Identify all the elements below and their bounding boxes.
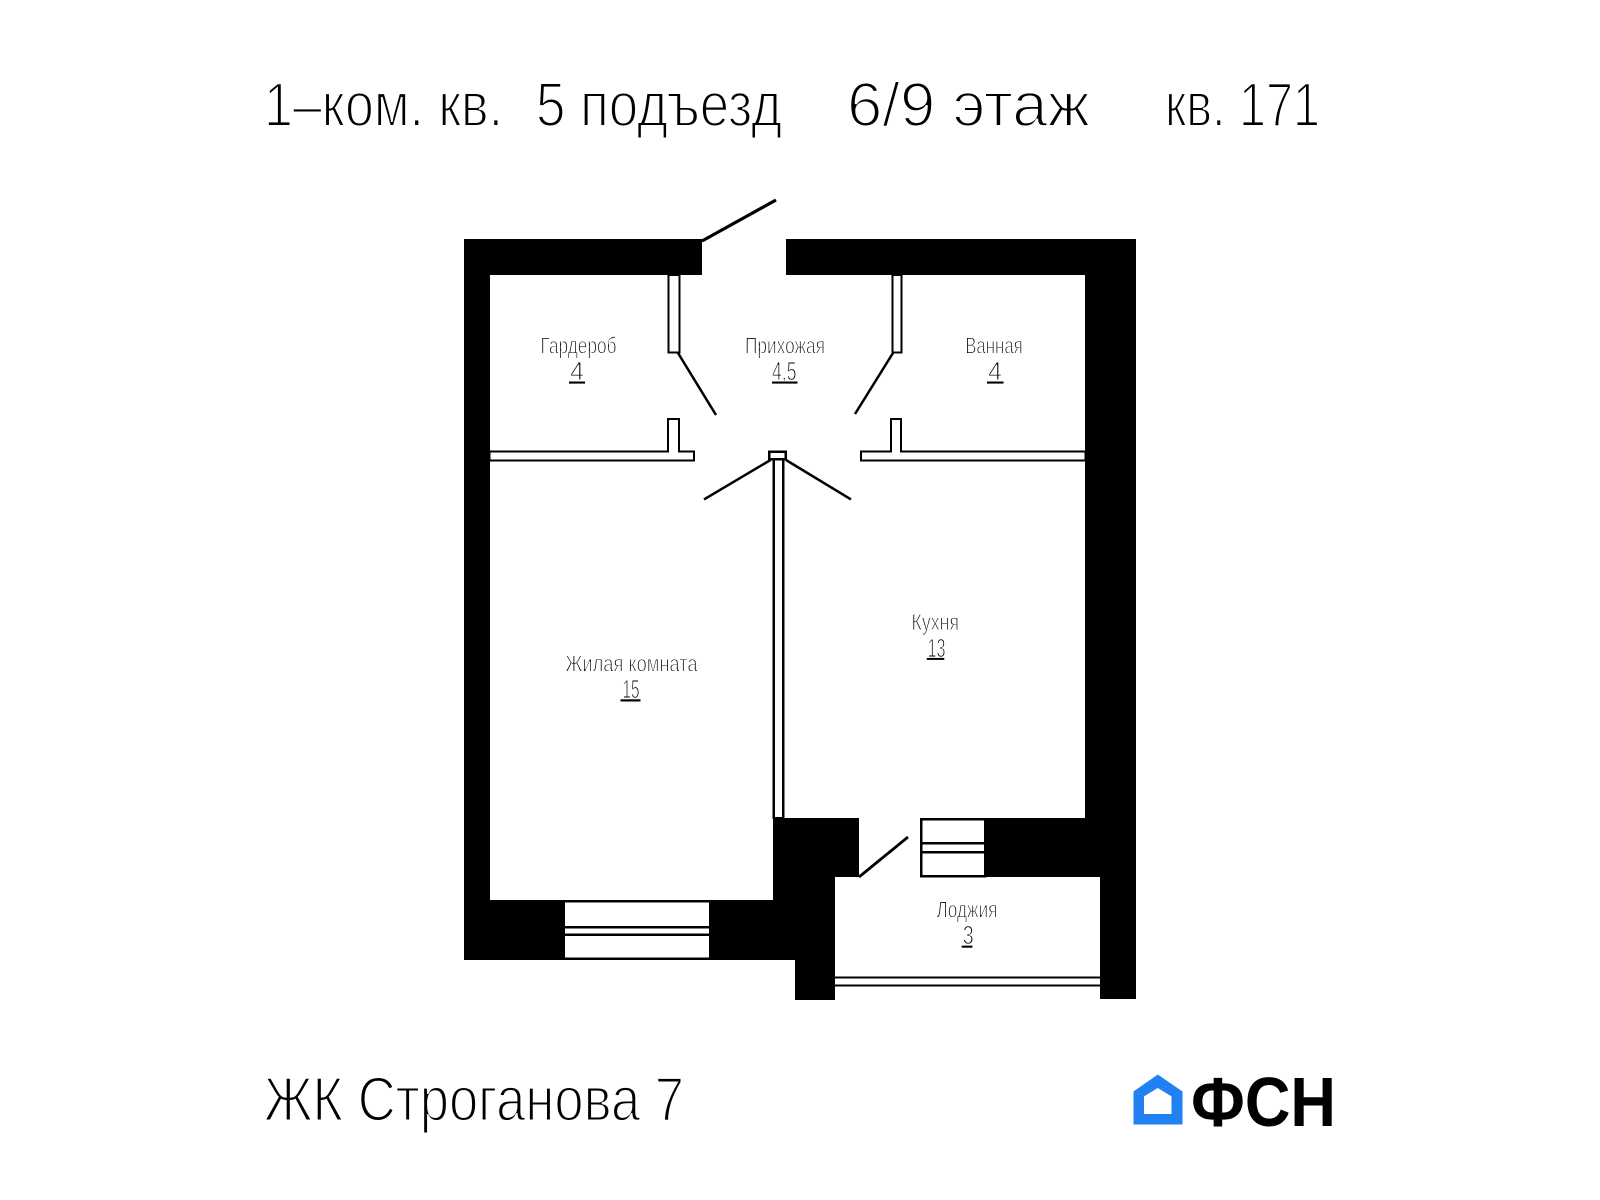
svg-text:1–ком. кв.: 1–ком. кв. <box>264 71 503 140</box>
svg-text:Гардероб: Гардероб <box>541 333 617 359</box>
svg-text:6/9 этаж: 6/9 этаж <box>847 71 1091 140</box>
svg-text:5 подъезд: 5 подъезд <box>536 71 782 140</box>
svg-text:кв. 171: кв. 171 <box>1165 71 1320 140</box>
svg-text:Лоджия: Лоджия <box>937 897 998 923</box>
svg-text:ЖК Строганова 7: ЖК Строганова 7 <box>264 1066 684 1135</box>
svg-text:3: 3 <box>963 920 974 950</box>
svg-text:ФСН: ФСН <box>1191 1063 1336 1141</box>
svg-text:Жилая комната: Жилая комната <box>566 651 698 677</box>
svg-text:Прихожая: Прихожая <box>745 333 825 359</box>
svg-text:Ванная: Ванная <box>965 333 1023 359</box>
svg-text:Кухня: Кухня <box>912 609 960 635</box>
